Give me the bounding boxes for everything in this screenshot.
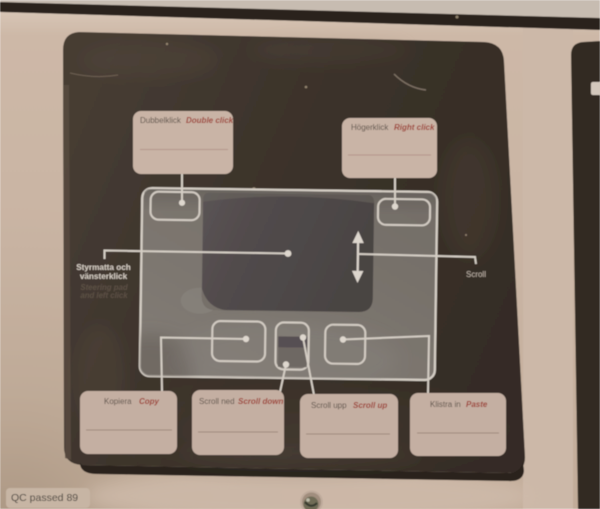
svg-text:Copy: Copy xyxy=(139,397,160,406)
svg-text:Kopiera: Kopiera xyxy=(104,397,132,406)
svg-text:Klistra in: Klistra in xyxy=(430,400,461,409)
svg-text:Högerklick: Högerklick xyxy=(351,123,389,132)
svg-text:vänsterklick: vänsterklick xyxy=(80,272,128,281)
svg-text:QC passed 89: QC passed 89 xyxy=(11,492,78,504)
svg-text:Styrmatta och: Styrmatta och xyxy=(76,263,131,272)
svg-text:Right click: Right click xyxy=(394,123,435,132)
svg-text:Scroll ned: Scroll ned xyxy=(199,397,235,406)
svg-text:Scroll up: Scroll up xyxy=(353,401,387,410)
svg-text:Dubbelklick: Dubbelklick xyxy=(140,116,182,125)
svg-text:Scroll: Scroll xyxy=(466,270,486,279)
svg-text:Scroll down: Scroll down xyxy=(238,397,283,406)
svg-text:Double click: Double click xyxy=(186,116,234,125)
svg-text:Scroll upp: Scroll upp xyxy=(311,401,347,410)
svg-text:Paste: Paste xyxy=(466,400,488,409)
svg-text:and left click: and left click xyxy=(80,291,128,300)
